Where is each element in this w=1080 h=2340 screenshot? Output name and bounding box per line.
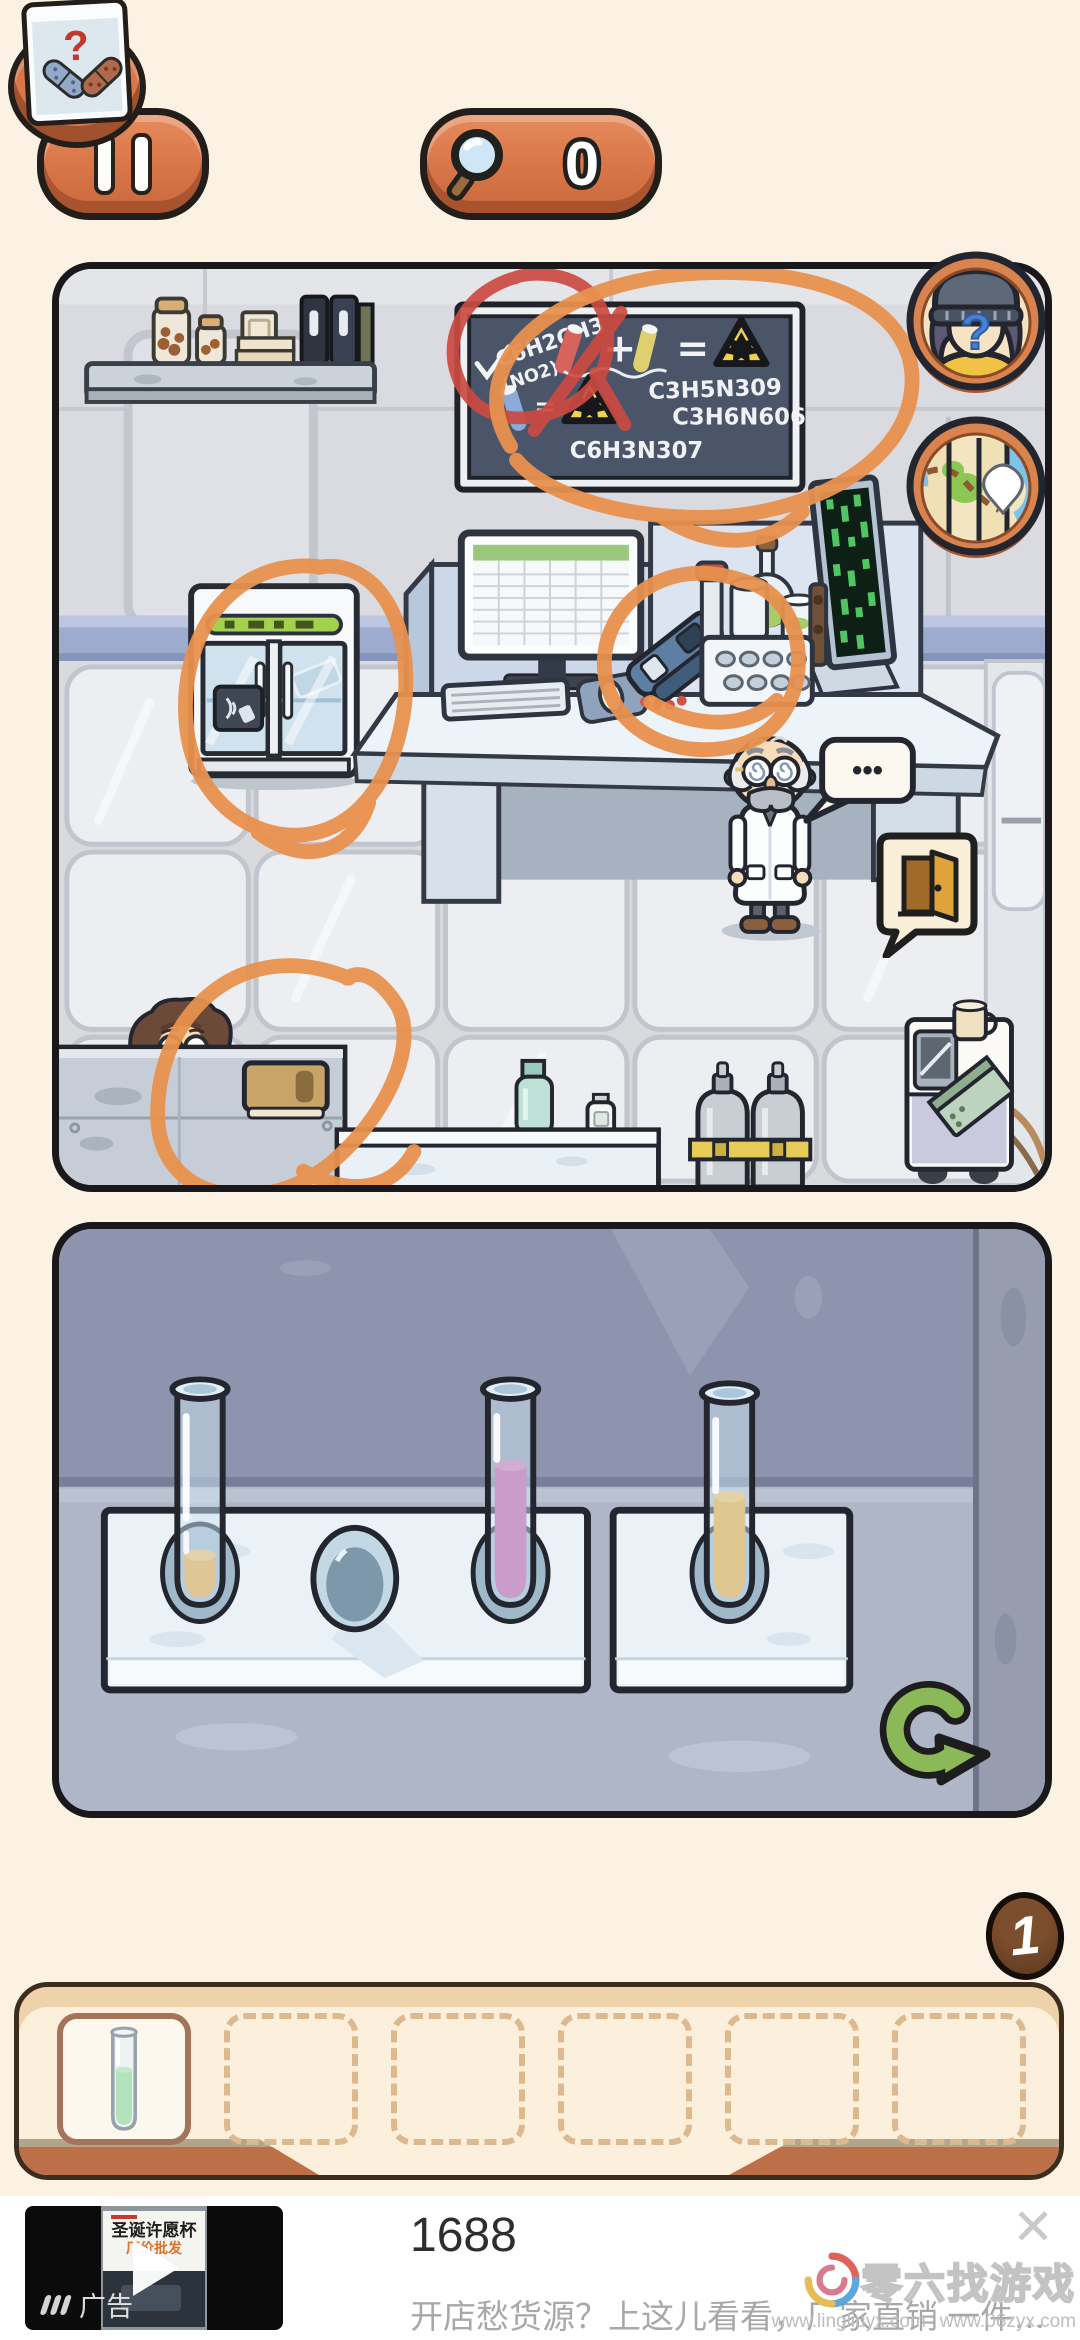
inventory-bar: [14, 1982, 1064, 2180]
inventory-count-value: 1: [1007, 1904, 1043, 1969]
cylinder-strap: [690, 1140, 810, 1160]
map-button[interactable]: [903, 416, 1049, 562]
fridge-handle-right[interactable]: [284, 663, 292, 718]
search-counter-button[interactable]: 0: [420, 108, 662, 220]
ad-video-thumbnail[interactable]: 圣诞许愿杯 厂价批发 广告: [25, 2206, 283, 2330]
watermark: 零六找游戏 www.lingliuyx.comwww.06zyx.com: [758, 2250, 1076, 2333]
scientist-shoe-right: [770, 917, 799, 932]
ad-network-logo-icon: [37, 2292, 73, 2318]
ad-title[interactable]: 1688: [410, 2208, 517, 2263]
inventory-slot-6[interactable]: [892, 2013, 1026, 2145]
lab-scene-panel[interactable]: C6H2CH3 (NO2)3 + = =: [52, 262, 1052, 1192]
jar-large[interactable]: [154, 308, 189, 363]
test-tube-orange-small[interactable]: [172, 1379, 227, 1605]
inventory-slot-4[interactable]: [558, 2013, 692, 2145]
hint-character-button[interactable]: ?: [903, 251, 1049, 397]
test-tube-orange-medium[interactable]: [702, 1383, 757, 1605]
tube-puzzle-panel[interactable]: [52, 1222, 1052, 1818]
magnifier-icon: [441, 125, 515, 203]
play-icon[interactable]: [133, 2240, 179, 2296]
ad-label: 广告: [37, 2285, 133, 2324]
mustache: [748, 788, 793, 811]
scientist-shoe-left: [741, 917, 770, 932]
pills-icon: [33, 44, 132, 113]
hint-question-mark: ?: [961, 304, 992, 360]
reset-button[interactable]: [877, 1681, 993, 1793]
search-count: 0: [515, 121, 655, 207]
watermark-brand: 零六找游戏: [861, 2250, 1076, 2310]
inventory-slot-2[interactable]: [224, 2013, 358, 2145]
paper-dispenser[interactable]: [244, 1063, 327, 1118]
watermark-logo-icon: [803, 2251, 861, 2309]
card-reader[interactable]: [215, 687, 262, 730]
cart-display: [915, 1031, 956, 1088]
lab-scene-art: C6H2CH3 (NO2)3 + = =: [59, 269, 1045, 1185]
clue-photo-area: ?: [32, 18, 123, 115]
green-test-tube-icon: [103, 2023, 145, 2135]
speech-dots: •••: [852, 754, 883, 787]
binders[interactable]: [302, 297, 373, 364]
chalk-equals: =: [676, 326, 709, 372]
chalk-formula-2: C3H6N606: [672, 405, 805, 431]
reset-arrow-icon: [877, 1681, 993, 1793]
ad-banner[interactable]: 圣诞许愿杯 厂价批发 广告 1688 开店愁货源？上这儿看看，厂家直销 一件… …: [0, 2196, 1080, 2340]
ad-close-button[interactable]: ✕: [1012, 2202, 1054, 2252]
exit-door-button[interactable]: [876, 832, 978, 958]
ad-label-text: 广告: [79, 2285, 133, 2324]
inventory-slot-3[interactable]: [391, 2013, 525, 2145]
watermark-urls: www.lingliuyx.comwww.06zyx.com: [758, 2311, 1076, 2333]
ad-red-line: [111, 2215, 137, 2219]
inventory-slot-5[interactable]: [725, 2013, 859, 2145]
search-count-value: 0: [565, 130, 599, 199]
game-screen: 0 ?: [0, 0, 1080, 2340]
clue-photo-card: ?: [21, 0, 133, 127]
inventory-count-badge: 1: [982, 1888, 1069, 1984]
test-tube-magenta[interactable]: [483, 1379, 538, 1605]
inventory-slot-1[interactable]: [57, 2013, 191, 2145]
open-door-icon: [898, 852, 956, 920]
ad-thumb-title: 圣诞许愿杯: [103, 2221, 205, 2240]
chalk-formula-1: C3H5N309: [648, 374, 782, 405]
chalk-formula-3: C6H3N307: [570, 438, 703, 464]
empty-tube-slot[interactable]: [313, 1528, 396, 1630]
keyboard[interactable]: [443, 679, 569, 719]
